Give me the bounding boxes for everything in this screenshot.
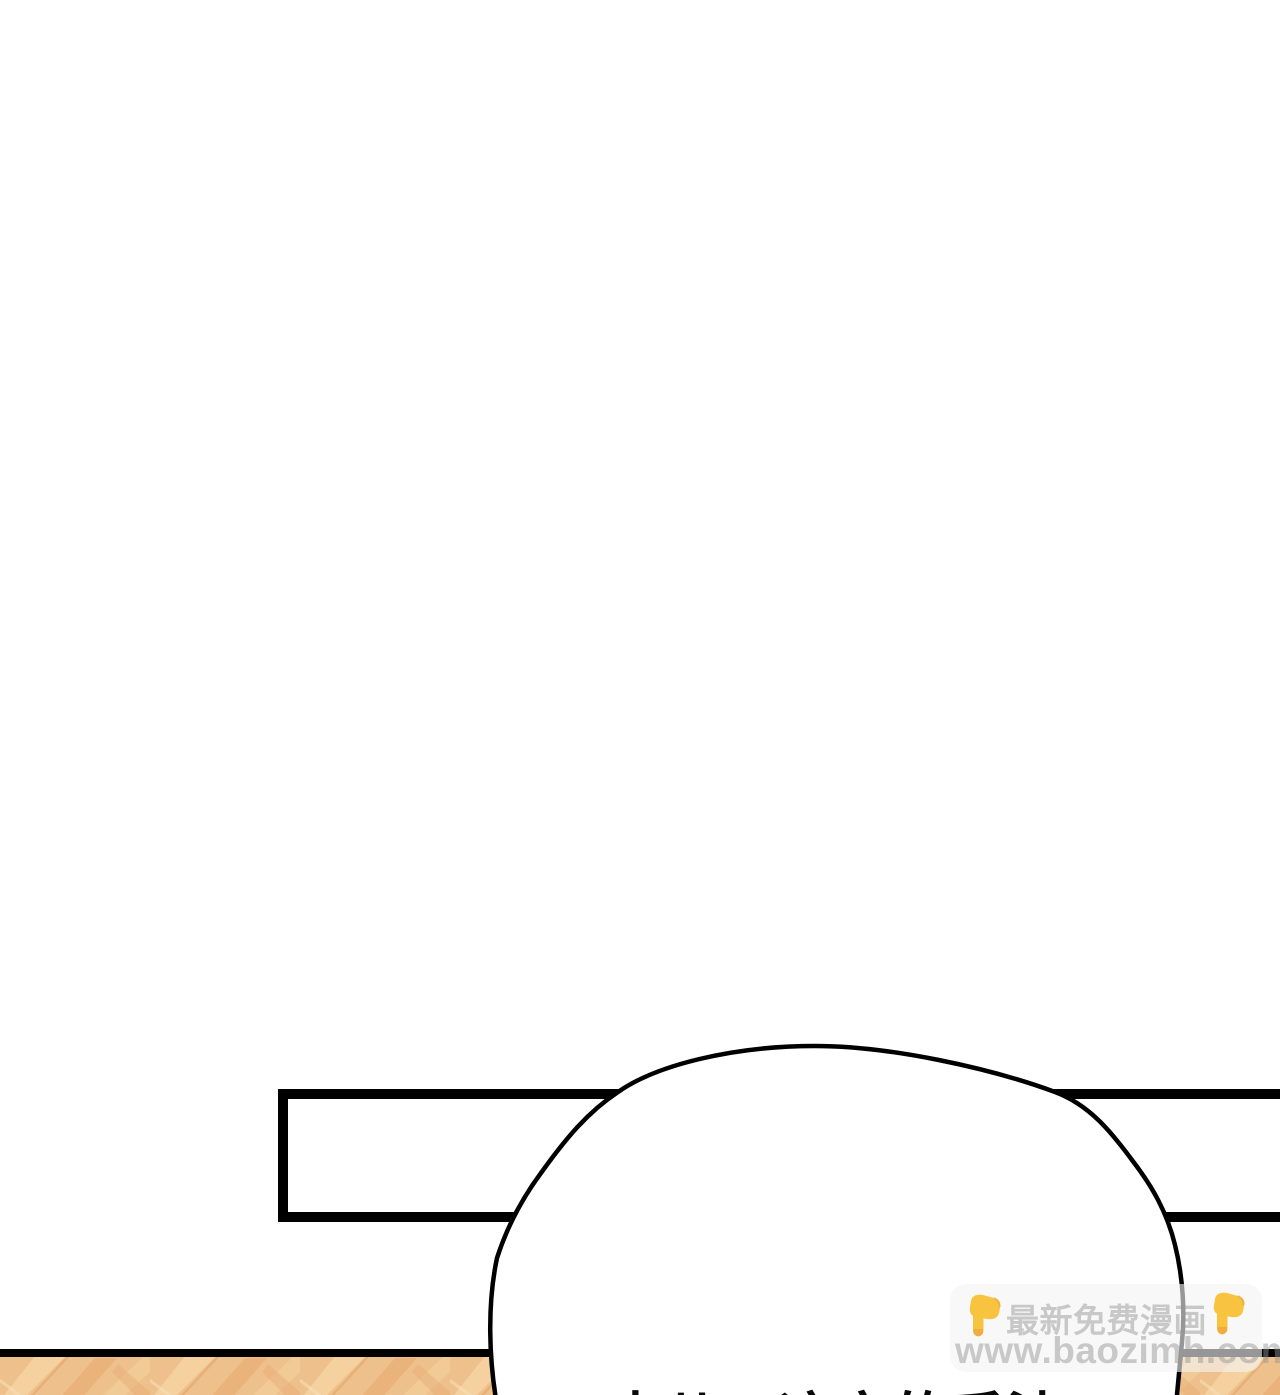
speech-line-1: 吉儿，这家的手法 xyxy=(607,1386,1063,1395)
watermark-panel: 最新免费漫画 www.baozimh.com xyxy=(950,1284,1262,1372)
comic-page: 吉儿，这家的手法 不错吧，下次我们 最新免费漫画 www.baozimh.com xyxy=(0,0,1280,1395)
watermark-url: www.baozimh.com xyxy=(955,1330,1280,1372)
comic-art-scene xyxy=(0,0,1280,1395)
